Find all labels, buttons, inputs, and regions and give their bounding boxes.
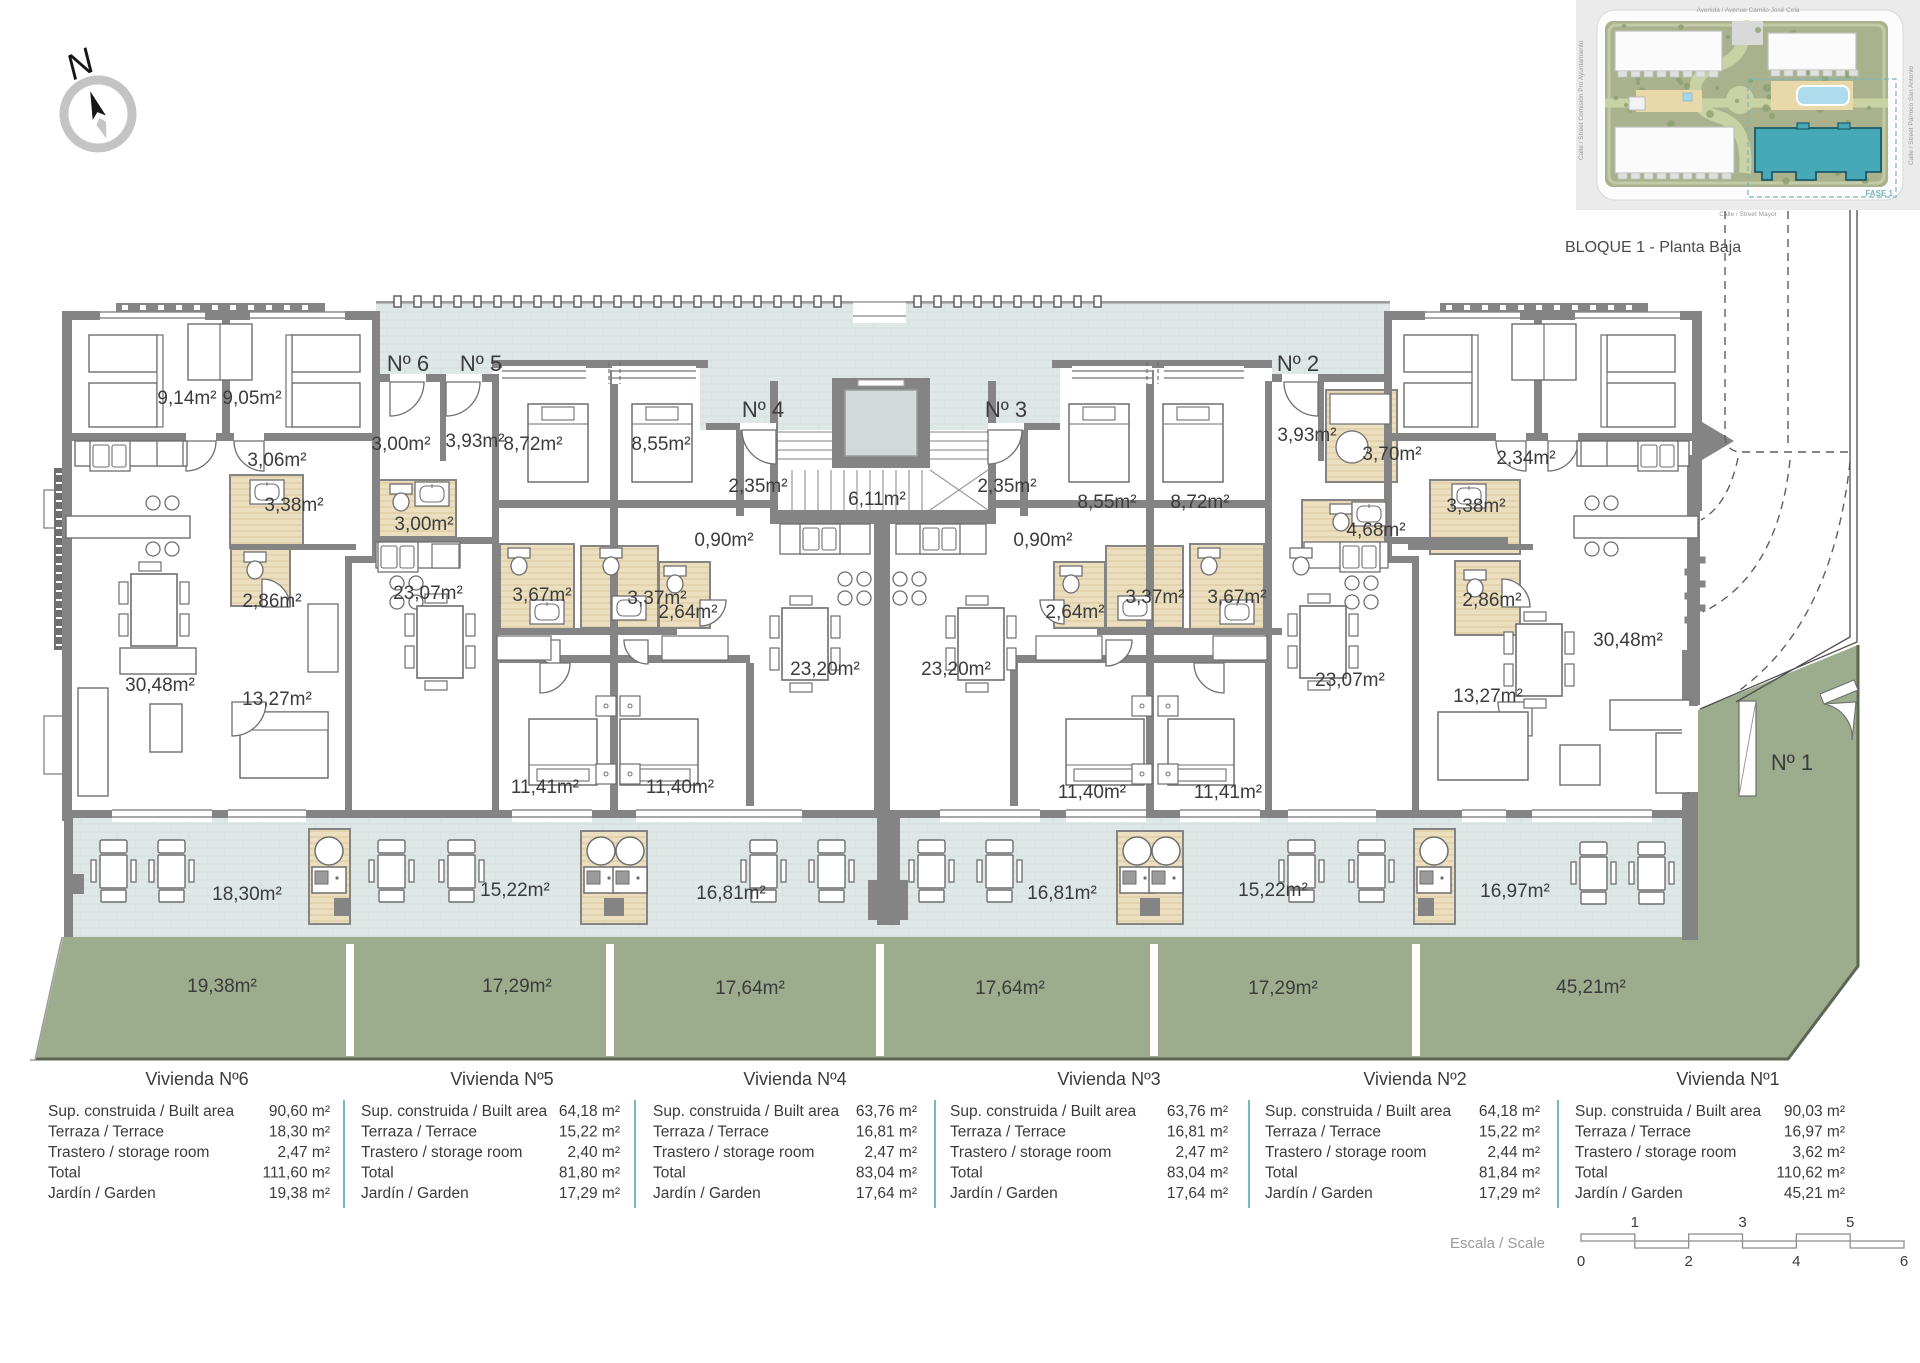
svg-text:17,29 m²: 17,29 m² xyxy=(559,1185,620,1202)
svg-text:Trastero / storage room: Trastero / storage room xyxy=(361,1144,522,1161)
svg-text:0: 0 xyxy=(1577,1253,1585,1270)
svg-text:8,55m²: 8,55m² xyxy=(631,434,690,455)
svg-text:FASE 1: FASE 1 xyxy=(1865,189,1893,198)
svg-text:Vivienda Nº6: Vivienda Nº6 xyxy=(145,1069,248,1089)
svg-text:2,44 m²: 2,44 m² xyxy=(1487,1144,1540,1161)
svg-text:3,00m²: 3,00m² xyxy=(394,514,453,535)
svg-text:Jardín / Garden: Jardín / Garden xyxy=(48,1185,156,1202)
svg-text:2,47 m²: 2,47 m² xyxy=(1175,1144,1228,1161)
svg-text:3,00m²: 3,00m² xyxy=(371,434,430,455)
svg-text:Calle / Street Mayor: Calle / Street Mayor xyxy=(1719,211,1777,218)
svg-text:11,40m²: 11,40m² xyxy=(1058,782,1126,803)
svg-text:15,22 m²: 15,22 m² xyxy=(1479,1124,1540,1141)
svg-text:13,27m²: 13,27m² xyxy=(242,689,312,710)
svg-text:Nº 1: Nº 1 xyxy=(1771,750,1813,775)
svg-text:16,97m²: 16,97m² xyxy=(1480,881,1550,902)
svg-text:Escala / Scale: Escala / Scale xyxy=(1450,1235,1545,1252)
svg-text:90,60 m²: 90,60 m² xyxy=(269,1103,330,1120)
svg-text:64,18 m²: 64,18 m² xyxy=(1479,1103,1540,1120)
svg-text:2: 2 xyxy=(1684,1253,1692,1270)
svg-text:Total: Total xyxy=(361,1165,394,1182)
svg-text:30,48m²: 30,48m² xyxy=(125,675,195,696)
svg-text:Sup. construida / Built area: Sup. construida / Built area xyxy=(1265,1103,1451,1120)
svg-text:Jardín / Garden: Jardín / Garden xyxy=(1265,1185,1373,1202)
svg-text:Trastero / storage room: Trastero / storage room xyxy=(950,1144,1111,1161)
svg-text:Nº 4: Nº 4 xyxy=(742,397,784,422)
svg-text:17,64 m²: 17,64 m² xyxy=(856,1185,917,1202)
svg-text:9,14m²: 9,14m² xyxy=(157,388,216,409)
svg-text:4,68m²: 4,68m² xyxy=(1346,520,1405,541)
svg-text:19,38 m²: 19,38 m² xyxy=(269,1185,330,1202)
svg-text:8,72m²: 8,72m² xyxy=(1170,492,1229,513)
svg-text:110,62 m²: 110,62 m² xyxy=(1776,1165,1845,1182)
svg-text:3,93m²: 3,93m² xyxy=(1277,425,1336,446)
svg-text:Vivienda Nº5: Vivienda Nº5 xyxy=(450,1069,553,1089)
svg-text:23,07m²: 23,07m² xyxy=(1315,670,1385,691)
svg-text:3,70m²: 3,70m² xyxy=(1362,444,1421,465)
svg-text:Sup. construida / Built area: Sup. construida / Built area xyxy=(950,1103,1136,1120)
svg-text:Nº 3: Nº 3 xyxy=(985,397,1027,422)
svg-text:Jardín / Garden: Jardín / Garden xyxy=(653,1185,761,1202)
svg-text:11,40m²: 11,40m² xyxy=(646,777,714,798)
svg-text:3,93m²: 3,93m² xyxy=(445,431,504,452)
svg-text:17,64 m²: 17,64 m² xyxy=(1167,1185,1228,1202)
svg-text:Vivienda Nº3: Vivienda Nº3 xyxy=(1057,1069,1160,1089)
svg-text:Calle / Street Párroco San Ant: Calle / Street Párroco San Antonio xyxy=(1908,66,1915,165)
svg-text:17,29m²: 17,29m² xyxy=(482,976,552,997)
svg-text:83,04 m²: 83,04 m² xyxy=(856,1165,917,1182)
svg-text:16,97 m²: 16,97 m² xyxy=(1784,1124,1845,1141)
svg-text:45,21m²: 45,21m² xyxy=(1556,977,1626,998)
svg-text:Sup. construida / Built area: Sup. construida / Built area xyxy=(361,1103,547,1120)
svg-text:15,22m²: 15,22m² xyxy=(1238,880,1308,901)
svg-text:Nº 5: Nº 5 xyxy=(460,351,502,376)
svg-text:8,72m²: 8,72m² xyxy=(503,434,562,455)
svg-text:6,11m²: 6,11m² xyxy=(848,489,906,510)
svg-text:63,76 m²: 63,76 m² xyxy=(1167,1103,1228,1120)
svg-text:2,35m²: 2,35m² xyxy=(977,476,1036,497)
svg-text:30,48m²: 30,48m² xyxy=(1593,630,1663,651)
svg-text:Nº 6: Nº 6 xyxy=(387,351,429,376)
svg-text:16,81 m²: 16,81 m² xyxy=(856,1124,917,1141)
svg-text:3,67m²: 3,67m² xyxy=(1207,587,1266,608)
svg-text:23,20m²: 23,20m² xyxy=(921,659,991,680)
svg-text:2,34m²: 2,34m² xyxy=(1496,448,1555,469)
svg-text:2,40 m²: 2,40 m² xyxy=(567,1144,620,1161)
svg-text:Total: Total xyxy=(1575,1165,1608,1182)
svg-text:Vivienda Nº2: Vivienda Nº2 xyxy=(1363,1069,1466,1089)
svg-text:81,84 m²: 81,84 m² xyxy=(1479,1165,1540,1182)
svg-text:Sup. construida / Built area: Sup. construida / Built area xyxy=(1575,1103,1761,1120)
svg-text:17,29 m²: 17,29 m² xyxy=(1479,1185,1540,1202)
svg-text:17,64m²: 17,64m² xyxy=(715,978,785,999)
svg-text:3,67m²: 3,67m² xyxy=(512,585,571,606)
svg-text:16,81m²: 16,81m² xyxy=(696,883,766,904)
svg-text:2,86m²: 2,86m² xyxy=(1462,590,1521,611)
svg-text:5: 5 xyxy=(1846,1214,1854,1231)
svg-text:3,38m²: 3,38m² xyxy=(264,495,323,516)
svg-text:Nº 2: Nº 2 xyxy=(1277,351,1319,376)
svg-text:Terraza / Terrace: Terraza / Terrace xyxy=(1265,1124,1381,1141)
svg-text:3,38m²: 3,38m² xyxy=(1446,496,1505,517)
svg-text:Terraza / Terrace: Terraza / Terrace xyxy=(1575,1124,1691,1141)
svg-text:8,55m²: 8,55m² xyxy=(1077,492,1136,513)
svg-text:6: 6 xyxy=(1900,1253,1908,1270)
svg-text:3,06m²: 3,06m² xyxy=(247,450,306,471)
svg-text:Total: Total xyxy=(950,1165,983,1182)
svg-text:19,38m²: 19,38m² xyxy=(187,976,257,997)
svg-text:Calle / Street Comisión Pro Ay: Calle / Street Comisión Pro Ayuntamiento xyxy=(1578,40,1585,160)
svg-text:83,04 m²: 83,04 m² xyxy=(1167,1165,1228,1182)
svg-text:Avenida / Avenue Camilo José C: Avenida / Avenue Camilo José Cela xyxy=(1696,7,1799,14)
svg-text:2,64m²: 2,64m² xyxy=(1045,602,1104,623)
svg-text:Jardín / Garden: Jardín / Garden xyxy=(950,1185,1058,1202)
svg-text:Terraza / Terrace: Terraza / Terrace xyxy=(950,1124,1066,1141)
svg-text:2,47 m²: 2,47 m² xyxy=(277,1144,330,1161)
svg-text:4: 4 xyxy=(1792,1253,1800,1270)
svg-text:Trastero / storage room: Trastero / storage room xyxy=(1265,1144,1426,1161)
svg-text:Sup. construida / Built area: Sup. construida / Built area xyxy=(48,1103,234,1120)
svg-text:Terraza / Terrace: Terraza / Terrace xyxy=(48,1124,164,1141)
svg-text:13,27m²: 13,27m² xyxy=(1453,686,1523,707)
svg-text:17,64m²: 17,64m² xyxy=(975,978,1045,999)
svg-text:63,76 m²: 63,76 m² xyxy=(856,1103,917,1120)
svg-text:Total: Total xyxy=(48,1165,81,1182)
svg-text:Trastero / storage room: Trastero / storage room xyxy=(48,1144,209,1161)
svg-text:Trastero / storage room: Trastero / storage room xyxy=(653,1144,814,1161)
svg-text:90,03 m²: 90,03 m² xyxy=(1784,1103,1845,1120)
svg-text:23,07m²: 23,07m² xyxy=(393,583,463,604)
svg-text:18,30m²: 18,30m² xyxy=(212,884,282,905)
svg-text:23,20m²: 23,20m² xyxy=(790,659,860,680)
svg-text:Vivienda Nº4: Vivienda Nº4 xyxy=(743,1069,846,1089)
svg-text:2,35m²: 2,35m² xyxy=(728,476,787,497)
svg-text:17,29m²: 17,29m² xyxy=(1248,978,1318,999)
svg-text:18,30 m²: 18,30 m² xyxy=(269,1124,330,1141)
svg-text:Jardín / Garden: Jardín / Garden xyxy=(361,1185,469,1202)
svg-text:1: 1 xyxy=(1631,1214,1639,1231)
svg-text:2,47 m²: 2,47 m² xyxy=(864,1144,917,1161)
svg-text:Terraza / Terrace: Terraza / Terrace xyxy=(361,1124,477,1141)
svg-text:0,90m²: 0,90m² xyxy=(694,530,753,551)
svg-text:Trastero / storage room: Trastero / storage room xyxy=(1575,1144,1736,1161)
svg-text:64,18 m²: 64,18 m² xyxy=(559,1103,620,1120)
svg-text:3,37m²: 3,37m² xyxy=(1125,587,1184,608)
svg-text:15,22 m²: 15,22 m² xyxy=(559,1124,620,1141)
svg-text:11,41m²: 11,41m² xyxy=(511,777,579,798)
svg-text:Vivienda Nº1: Vivienda Nº1 xyxy=(1676,1069,1779,1089)
svg-text:15,22m²: 15,22m² xyxy=(480,880,550,901)
svg-text:45,21 m²: 45,21 m² xyxy=(1784,1185,1845,1202)
svg-text:Total: Total xyxy=(653,1165,686,1182)
svg-text:0,90m²: 0,90m² xyxy=(1013,530,1072,551)
svg-text:2,64m²: 2,64m² xyxy=(658,602,717,623)
svg-text:16,81 m²: 16,81 m² xyxy=(1167,1124,1228,1141)
svg-text:BLOQUE 1 - Planta Baja: BLOQUE 1 - Planta Baja xyxy=(1565,239,1741,256)
svg-text:3,62 m²: 3,62 m² xyxy=(1792,1144,1845,1161)
svg-text:Terraza / Terrace: Terraza / Terrace xyxy=(653,1124,769,1141)
svg-text:Sup. construida / Built area: Sup. construida / Built area xyxy=(653,1103,839,1120)
svg-text:111,60 m²: 111,60 m² xyxy=(263,1165,331,1182)
svg-text:16,81m²: 16,81m² xyxy=(1027,883,1097,904)
svg-text:9,05m²: 9,05m² xyxy=(222,388,281,409)
svg-text:11,41m²: 11,41m² xyxy=(1194,782,1262,803)
svg-text:Total: Total xyxy=(1265,1165,1298,1182)
svg-text:2,86m²: 2,86m² xyxy=(242,591,301,612)
svg-text:Jardín / Garden: Jardín / Garden xyxy=(1575,1185,1683,1202)
svg-text:81,80 m²: 81,80 m² xyxy=(559,1165,620,1182)
svg-text:3: 3 xyxy=(1738,1214,1746,1231)
